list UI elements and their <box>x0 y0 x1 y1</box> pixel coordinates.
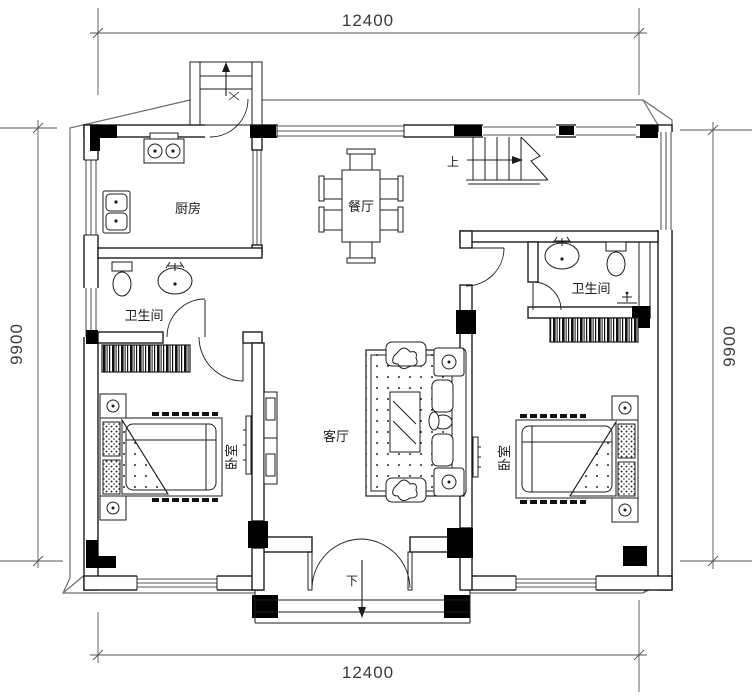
room-label-bedroom-left: 卧室 <box>224 444 239 470</box>
window-right-stair <box>657 132 673 230</box>
dim-left-value: 9900 <box>7 323 26 365</box>
dim-right-value: 9900 <box>720 325 739 367</box>
sofa-set <box>366 342 466 502</box>
window-kitchen-partition <box>251 150 263 245</box>
bed-left <box>100 394 222 520</box>
room-label-kitchen: 厨房 <box>175 201 201 216</box>
dimension-bottom: 12400 <box>90 600 647 692</box>
window-left-bath <box>83 288 99 337</box>
bed-right <box>516 396 638 522</box>
down-arrow-icon <box>358 560 366 618</box>
armchair-bottom <box>386 478 426 502</box>
room-label-bath-left: 卫生间 <box>124 308 163 323</box>
floor-plan-drawing: 12400 12400 9900 9900 <box>0 0 752 697</box>
dimension-top: 12400 <box>90 8 647 95</box>
doors <box>167 248 561 381</box>
dimension-right: 9900 <box>680 122 752 569</box>
window-bedroom-left <box>137 575 217 591</box>
dim-top-value: 12400 <box>342 11 394 30</box>
tv-cabinet-living <box>264 392 277 484</box>
toilet-right <box>606 242 626 276</box>
stove <box>144 133 184 163</box>
bedroom-right-door <box>466 248 504 286</box>
window-bedroom-right <box>516 575 596 591</box>
wardrobe-left <box>102 345 190 372</box>
window-left-kitchen <box>83 160 99 235</box>
shower-icon <box>617 292 637 303</box>
bath-right-door <box>533 282 561 310</box>
kitchen-fixtures <box>103 133 184 233</box>
room-label-bath-right: 卫生间 <box>571 281 610 296</box>
sofa <box>429 348 466 496</box>
bedroom-left-door <box>199 337 243 381</box>
stairs-up-label: 上 <box>447 155 459 169</box>
room-label-bedroom-right: 卧室 <box>497 445 512 471</box>
kitchen-sink <box>103 191 130 233</box>
entry-down-label: 下 <box>346 574 358 588</box>
basin-left <box>158 262 192 294</box>
wardrobe-right <box>550 318 638 342</box>
dimension-left: 9900 <box>0 120 63 568</box>
coffee-table <box>390 392 420 452</box>
room-label-living: 客厅 <box>323 429 349 444</box>
toilet-left <box>112 262 132 296</box>
tv-bedroom-left <box>243 416 251 474</box>
dining-set: 餐厅 <box>319 149 403 263</box>
stairs: 上 <box>447 137 548 184</box>
entry-double-door <box>312 539 410 588</box>
dim-bottom-value: 12400 <box>342 663 394 682</box>
stairs-up-arrow-icon <box>467 156 523 164</box>
tv-bedroom-right <box>473 437 481 477</box>
up-steps-arrow-icon <box>222 62 230 96</box>
bath-left-door <box>167 299 205 337</box>
room-label-dining: 餐厅 <box>348 199 374 214</box>
window-top-dining <box>277 124 404 138</box>
bathroom-left-fixtures <box>112 262 192 296</box>
armchair-top <box>386 342 426 369</box>
floor-plan-canvas: 12400 12400 9900 9900 <box>0 0 752 697</box>
